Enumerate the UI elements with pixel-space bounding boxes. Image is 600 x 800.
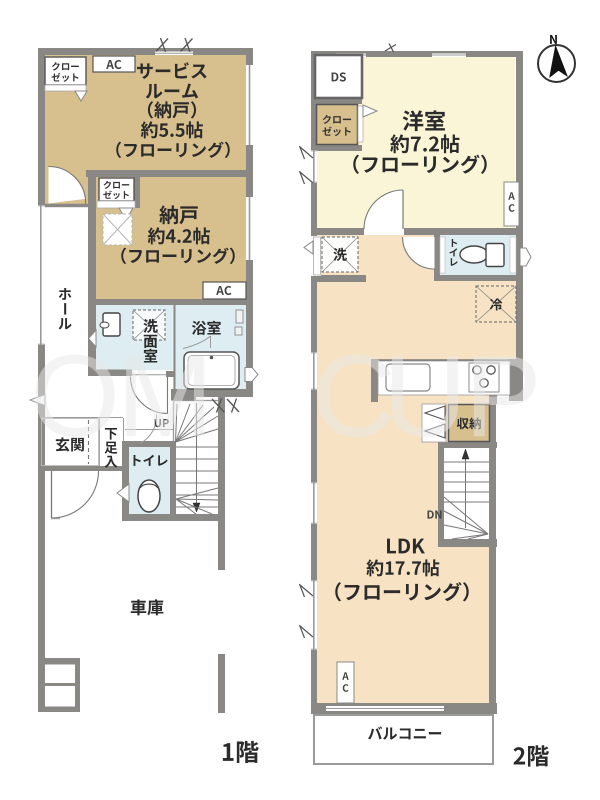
svg-text:U: U	[383, 331, 467, 461]
svg-text:M: M	[117, 331, 214, 461]
svg-text:P: P	[464, 331, 541, 461]
svg-text:O: O	[30, 331, 120, 461]
